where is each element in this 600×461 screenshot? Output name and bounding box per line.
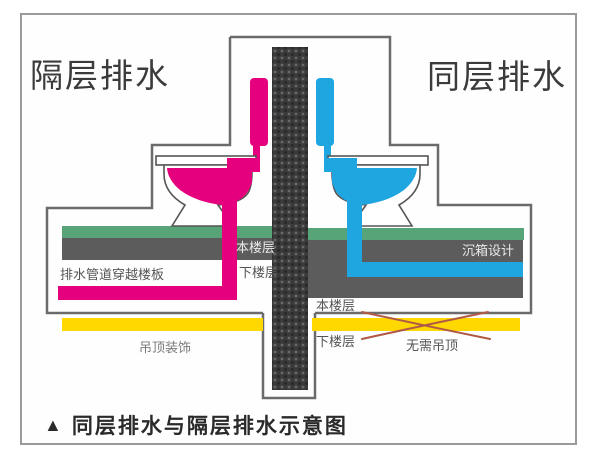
label-right-lower-floor: 下楼层 bbox=[316, 335, 355, 349]
floor-finish-right bbox=[308, 228, 524, 240]
title-same-floor-drainage: 同层排水 bbox=[427, 62, 567, 95]
suspended-ceiling-strip-left bbox=[62, 318, 263, 331]
label-right-this-floor: 本楼层 bbox=[316, 299, 355, 313]
floor-finish-left bbox=[62, 226, 272, 238]
label-left-this-floor: 本楼层 bbox=[236, 241, 275, 255]
figure-caption: ▲ 同层排水与隔层排水示意图 bbox=[44, 410, 348, 440]
caption-text: 同层排水与隔层排水示意图 bbox=[72, 410, 348, 440]
caption-triangle-icon: ▲ bbox=[44, 415, 62, 436]
label-ceiling-decoration: 吊顶装饰 bbox=[139, 341, 191, 355]
drain-riser-column bbox=[272, 47, 308, 390]
label-pipe-through-slab: 排水管道穿越楼板 bbox=[60, 268, 164, 282]
label-no-ceiling-needed: 无需吊顶 bbox=[406, 339, 458, 353]
title-cross-floor-drainage: 隔层排水 bbox=[30, 61, 170, 94]
label-sunken-box-design: 沉箱设计 bbox=[462, 244, 514, 258]
screenshot-root: 隔层排水 同层排水 本楼层 下楼层 排水管道穿越楼板 吊顶装饰 沉箱设计 本楼层… bbox=[0, 0, 600, 461]
toilet-left bbox=[156, 78, 268, 226]
label-left-lower-floor: 下楼层 bbox=[239, 266, 278, 280]
toilet-right bbox=[316, 78, 428, 226]
